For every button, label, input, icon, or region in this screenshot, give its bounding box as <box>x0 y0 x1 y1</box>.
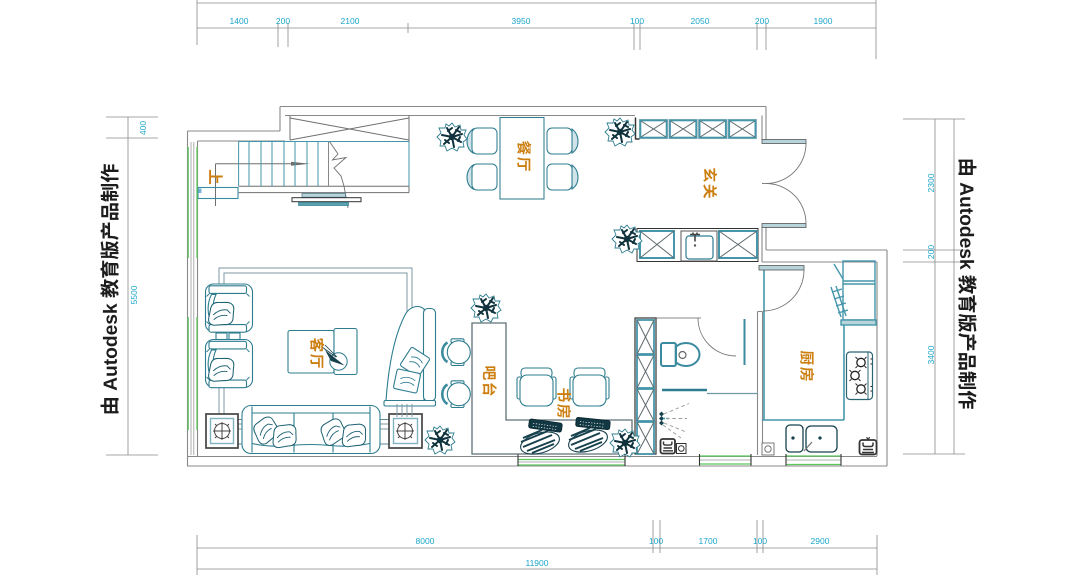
svg-text:2300: 2300 <box>926 173 936 192</box>
svg-text:3400: 3400 <box>926 345 936 364</box>
svg-text:100: 100 <box>649 536 663 546</box>
svg-text:11900: 11900 <box>525 558 548 568</box>
svg-text:3950: 3950 <box>512 16 531 26</box>
svg-text:2900: 2900 <box>811 536 830 546</box>
svg-text:2100: 2100 <box>341 16 360 26</box>
svg-text:1700: 1700 <box>699 536 718 546</box>
svg-text:100: 100 <box>753 536 767 546</box>
svg-text:1900: 1900 <box>814 16 833 26</box>
svg-text:8000: 8000 <box>416 536 435 546</box>
svg-text:1400: 1400 <box>230 16 249 26</box>
svg-text:5500: 5500 <box>129 285 139 304</box>
svg-text:400: 400 <box>138 121 148 135</box>
svg-text:200: 200 <box>755 16 769 26</box>
svg-text:200: 200 <box>926 245 936 259</box>
svg-text:100: 100 <box>630 16 644 26</box>
svg-text:200: 200 <box>276 16 290 26</box>
svg-text:2050: 2050 <box>691 16 710 26</box>
